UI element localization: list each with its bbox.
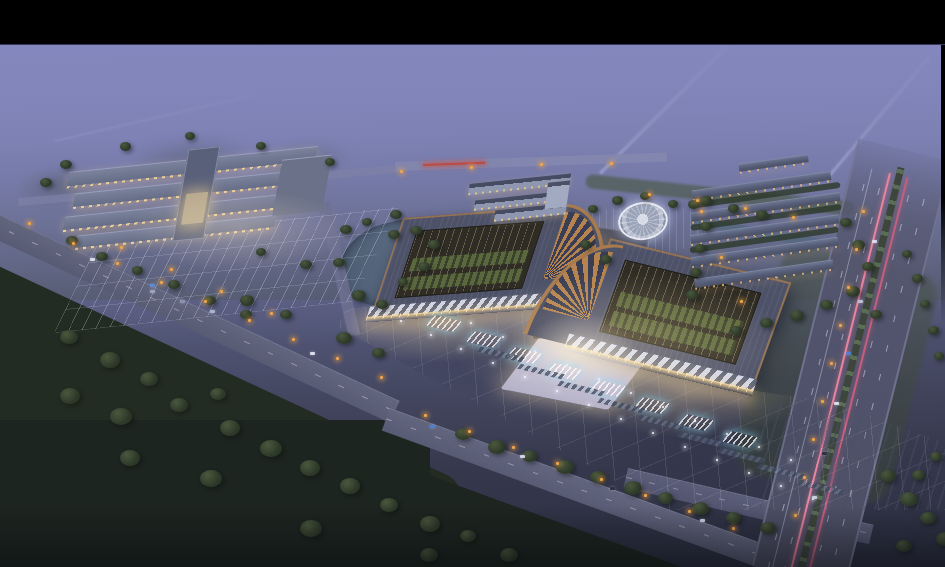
tree <box>852 240 865 250</box>
tree <box>60 388 80 404</box>
street-lamp-light <box>862 210 865 213</box>
car <box>310 352 315 355</box>
tree <box>580 240 591 249</box>
tree <box>260 440 282 457</box>
tree <box>928 326 939 335</box>
street-lamp-light <box>28 222 31 225</box>
tree <box>820 300 833 310</box>
plaza-light <box>492 362 494 364</box>
tree <box>694 244 706 253</box>
street-lamp-light <box>644 494 647 497</box>
tree <box>372 348 385 358</box>
bench-row <box>717 448 765 464</box>
tree <box>902 250 912 258</box>
plaza-light <box>502 336 504 338</box>
car <box>150 290 155 293</box>
tree <box>140 372 158 386</box>
plaza-light <box>430 334 432 336</box>
tree <box>700 196 712 205</box>
bottom-vignette <box>0 505 945 567</box>
tree <box>220 420 240 436</box>
tree <box>388 230 400 239</box>
car <box>520 455 525 458</box>
fountain-pool <box>722 431 758 448</box>
street-lamp-light <box>648 193 651 196</box>
car <box>872 240 877 243</box>
tree <box>730 326 742 335</box>
street-lamp-light <box>830 362 833 365</box>
street-lamp-light <box>740 300 743 303</box>
street-lamp-light <box>821 400 824 403</box>
plaza-light <box>400 320 402 322</box>
street-lamp-light <box>120 246 123 249</box>
street-lamp-light <box>424 414 427 417</box>
tree <box>556 460 574 474</box>
letterbox-bar <box>0 0 945 45</box>
tree <box>60 330 78 344</box>
plaza-light <box>684 446 686 448</box>
street-lamp-light <box>470 166 473 169</box>
tree <box>210 388 226 400</box>
tree <box>624 481 642 495</box>
tree <box>333 258 345 267</box>
tree <box>790 310 804 321</box>
tree <box>325 158 335 166</box>
tree <box>668 200 678 208</box>
tree <box>612 196 623 205</box>
street-lamp-light <box>512 446 515 449</box>
tree <box>280 310 292 319</box>
bench-row <box>797 480 845 496</box>
street-lamp-light <box>600 478 603 481</box>
car <box>210 310 215 313</box>
tree <box>120 450 140 466</box>
plaza-light <box>470 322 472 324</box>
tree <box>96 252 108 261</box>
tree <box>398 278 408 286</box>
tree <box>200 470 222 487</box>
tree <box>60 160 72 169</box>
street-lamp-light <box>855 248 858 251</box>
tree <box>362 218 372 226</box>
tree <box>340 225 352 234</box>
tree <box>132 266 143 275</box>
tree <box>170 398 188 412</box>
tree <box>920 300 930 308</box>
car <box>822 452 827 455</box>
car <box>834 402 839 405</box>
tree <box>880 470 896 482</box>
plaza-light <box>460 348 462 350</box>
plaza-light <box>748 472 750 474</box>
tree <box>690 268 702 277</box>
plaza-light <box>652 432 654 434</box>
tree <box>488 440 506 454</box>
plaza-light <box>556 390 558 392</box>
street-lamp-light <box>540 163 543 166</box>
street-lamp-light <box>792 216 795 219</box>
plaza-light <box>780 485 782 487</box>
tree <box>340 478 360 494</box>
street-lamp-light <box>170 268 173 271</box>
street-lamp-light <box>468 430 471 433</box>
street-lamp-light <box>812 438 815 441</box>
car <box>812 496 817 499</box>
tree <box>336 332 352 344</box>
tree <box>912 470 925 480</box>
tree <box>590 471 606 483</box>
fountain-pool <box>678 414 714 431</box>
tree <box>686 290 699 300</box>
tree <box>728 204 739 213</box>
aerial-rendering-scene <box>0 0 945 567</box>
tree <box>840 218 852 227</box>
tree <box>934 352 944 360</box>
tree <box>700 222 712 231</box>
street-lamp-light <box>839 324 842 327</box>
tree <box>185 132 195 140</box>
street-lamp-light <box>744 207 747 210</box>
street-lamp-light <box>160 281 163 284</box>
street-lamp-light <box>292 338 295 341</box>
tree <box>428 240 440 249</box>
plaza-light <box>790 459 792 461</box>
street-lamp-light <box>204 300 207 303</box>
fountain-pool <box>426 315 462 332</box>
right-edge-shadow <box>941 44 945 324</box>
tree <box>870 310 882 319</box>
bench-row <box>757 464 805 480</box>
street-lamp-light <box>847 286 850 289</box>
tree <box>100 352 120 368</box>
plaza-light <box>716 459 718 461</box>
street-lamp-light <box>248 319 251 322</box>
street-lamp-light <box>270 312 273 315</box>
tree <box>300 460 320 476</box>
tree <box>658 492 673 504</box>
tree <box>40 178 52 187</box>
bench-row <box>677 432 725 448</box>
car <box>180 300 185 303</box>
street-lamp-light <box>610 162 613 165</box>
tree <box>120 142 131 151</box>
street-lamp-light <box>336 357 339 360</box>
tree <box>352 290 366 301</box>
car <box>90 258 95 261</box>
car <box>858 300 863 303</box>
street-lamp-light <box>72 242 75 245</box>
street-lamp-light <box>380 376 383 379</box>
fountain-pool <box>466 331 502 348</box>
tree <box>418 262 430 271</box>
car <box>610 487 615 490</box>
tree <box>410 226 422 235</box>
tree <box>930 452 942 461</box>
street-lamp-light <box>696 199 699 202</box>
plaza-light <box>588 404 590 406</box>
street-lamp-light <box>556 462 559 465</box>
tree <box>760 318 773 328</box>
street-lamp-light <box>700 210 703 213</box>
car <box>150 284 155 287</box>
tree <box>168 280 180 289</box>
tree <box>256 142 266 150</box>
plaza-light <box>630 392 632 394</box>
tree <box>756 210 768 219</box>
tree <box>110 408 132 425</box>
tree <box>900 492 918 506</box>
street-lamp-light <box>400 170 403 173</box>
tree <box>912 274 923 283</box>
tree <box>240 295 254 306</box>
car <box>430 425 435 428</box>
tree <box>240 310 252 319</box>
street-lamp-light <box>220 290 223 293</box>
scatter-layer <box>0 0 945 567</box>
plaza-light <box>758 446 760 448</box>
plaza-light <box>524 376 526 378</box>
tree <box>300 260 312 269</box>
car <box>846 352 851 355</box>
street-lamp-light <box>116 262 119 265</box>
street-lamp-light <box>720 256 723 259</box>
tree <box>256 248 266 256</box>
tree <box>376 300 388 309</box>
tree <box>862 262 874 271</box>
tree <box>390 210 402 219</box>
plaza-light <box>620 418 622 420</box>
tree <box>588 205 598 213</box>
tree <box>600 255 612 264</box>
